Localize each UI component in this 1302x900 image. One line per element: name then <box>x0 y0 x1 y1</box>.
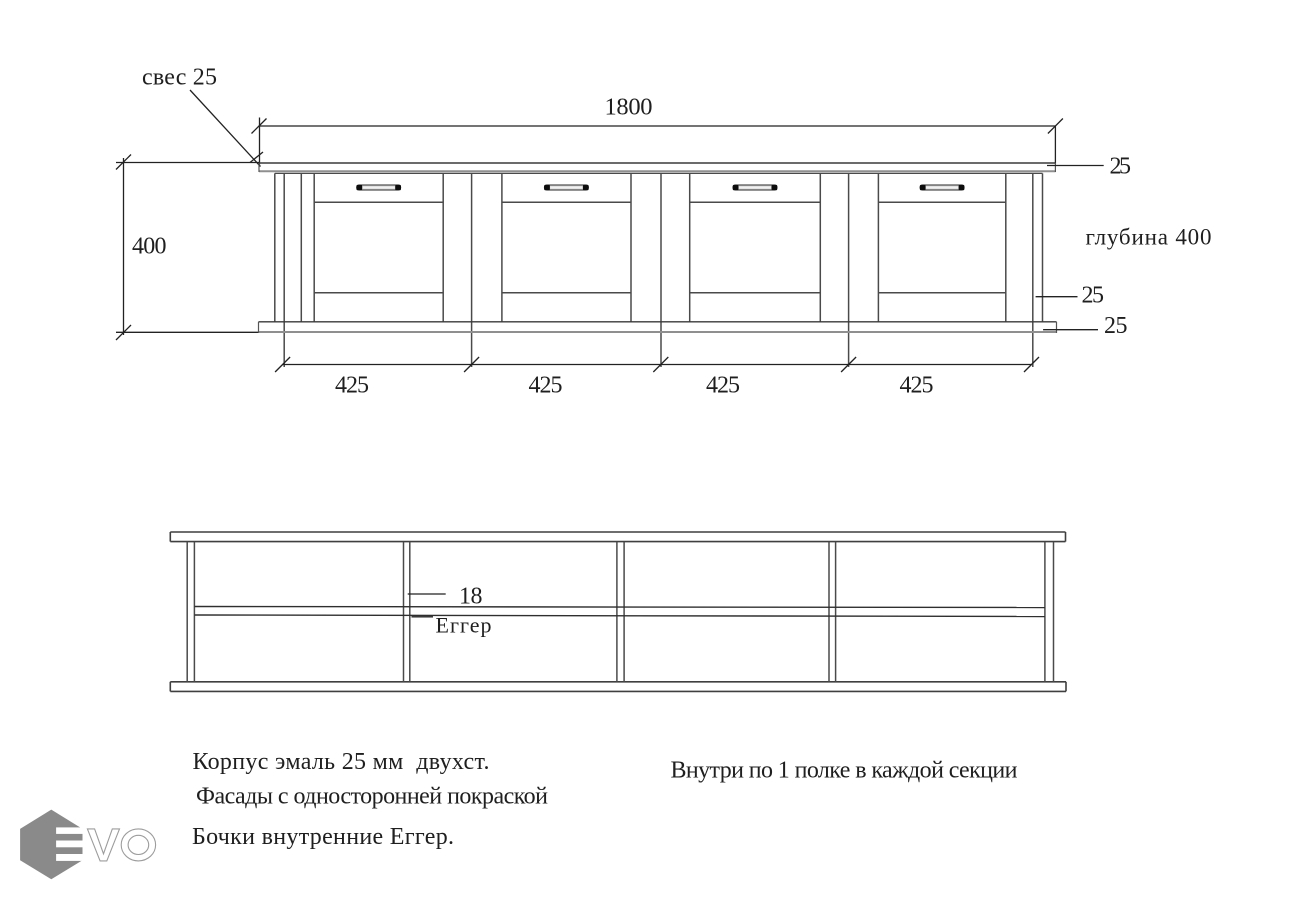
svg-text:Фасады с односторонней покраск: Фасады с односторонней покраской <box>196 784 548 810</box>
svg-text:глубина 400: глубина 400 <box>1086 225 1212 250</box>
svg-text:25: 25 <box>1104 313 1128 339</box>
svg-text:425: 425 <box>900 373 934 399</box>
svg-text:Еггер: Еггер <box>436 613 492 638</box>
svg-text:25: 25 <box>1110 154 1132 180</box>
svg-text:Бочки внутренние Еггер.: Бочки внутренние Еггер. <box>192 824 454 850</box>
svg-text:425: 425 <box>706 373 740 399</box>
svg-text:Корпус эмаль 25 мм двухст.: Корпус эмаль 25 мм двухст. <box>193 749 490 775</box>
svg-text:свес 25: свес 25 <box>142 65 217 91</box>
svg-text:425: 425 <box>335 373 369 399</box>
svg-text:425: 425 <box>529 373 563 399</box>
svg-text:1800: 1800 <box>605 94 653 121</box>
svg-text:25: 25 <box>1082 283 1105 309</box>
svg-text:Внутри по 1 полке в каждой сек: Внутри по 1 полке в каждой секции <box>671 758 1018 784</box>
svg-text:18: 18 <box>459 584 483 610</box>
svg-text:400: 400 <box>132 234 167 260</box>
